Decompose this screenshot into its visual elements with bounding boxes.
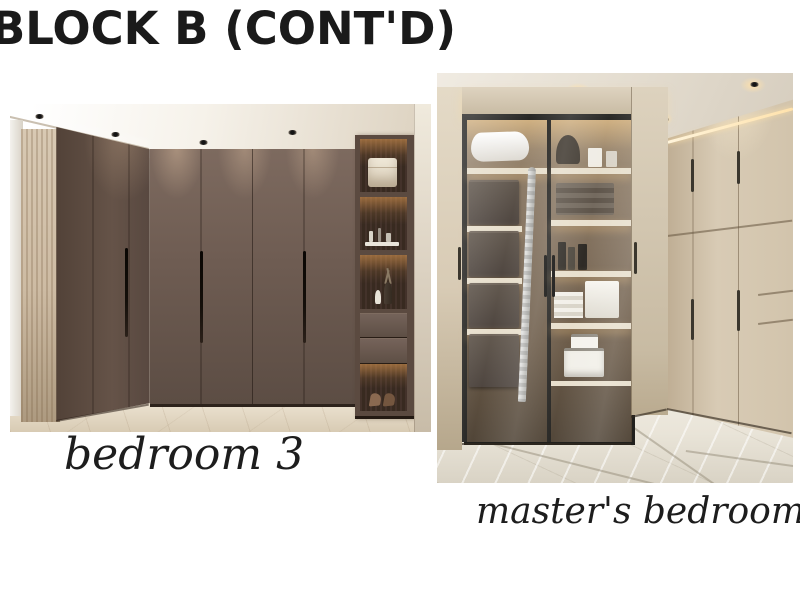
tower-drawer <box>360 313 407 339</box>
bottle <box>558 242 566 269</box>
glass-door-right <box>548 117 635 444</box>
fabric-drawer <box>469 283 519 328</box>
cabinet-shelf <box>551 220 632 226</box>
bedroom-3-caption: bedroom 3 <box>64 429 304 480</box>
moodboard-page: { "page": { "title": "BLOCK B (CONT'D)" … <box>0 0 800 600</box>
door-handle <box>125 248 128 337</box>
white-vase <box>375 290 381 304</box>
glass-door-left <box>464 117 551 444</box>
spotlight-icon <box>111 132 120 137</box>
white-container <box>606 151 617 167</box>
fabric-drawer <box>469 334 519 387</box>
shelf-compartment <box>360 139 407 192</box>
white-container <box>588 148 603 167</box>
perfume-bottle <box>369 231 373 242</box>
glass-door-handle <box>552 255 555 297</box>
bottle <box>578 244 587 270</box>
masters-bedroom-photo <box>437 73 793 483</box>
wardrobe-left-wall <box>56 104 149 432</box>
glass-door-handle <box>544 255 547 297</box>
storage-box <box>368 158 397 187</box>
white-box <box>585 281 619 318</box>
dark-vase <box>384 282 392 304</box>
high-heel-shoe <box>382 393 396 407</box>
bottle <box>568 247 574 270</box>
folded-towels <box>556 183 614 215</box>
drawer-seam <box>758 319 793 325</box>
shelf-compartment <box>360 255 407 308</box>
bedroom-3-photo <box>10 104 431 432</box>
spotlight-icon <box>35 114 44 119</box>
masters-bedroom-caption: master's bedroom <box>476 491 800 532</box>
tower-drawer <box>360 338 407 364</box>
wood-pillar <box>21 129 60 423</box>
door-handle <box>737 151 740 184</box>
cabinet-shelf <box>551 168 632 174</box>
cabinet-shelf <box>551 271 632 277</box>
return-wall <box>414 104 431 432</box>
display-shelf-tower <box>355 135 415 418</box>
ironing-board <box>518 167 536 402</box>
drawer-seam <box>758 290 793 296</box>
step-stool <box>564 348 604 377</box>
cabinet-shelf <box>551 323 632 329</box>
fabric-drawer <box>469 180 519 225</box>
shelf-compartment <box>360 364 407 410</box>
shelf-compartment <box>360 197 407 250</box>
wardrobe-front-panel <box>631 87 668 415</box>
door-handle <box>691 159 694 192</box>
high-heel-shoe <box>369 393 383 407</box>
door-handle <box>737 290 740 331</box>
cabinet-seam <box>667 220 793 237</box>
door-handle <box>200 251 203 343</box>
fabric-drawer <box>469 231 519 276</box>
shelf-tower-interior <box>360 139 407 411</box>
wardrobe-left-stile <box>437 87 462 450</box>
pot <box>556 135 580 164</box>
perfume-bottle <box>378 228 381 242</box>
door-handle <box>634 242 637 275</box>
pillow <box>470 131 529 162</box>
wardrobe-front-wall <box>150 149 356 407</box>
baseboard <box>462 443 631 445</box>
display-tray <box>365 242 399 246</box>
perfume-bottle <box>386 233 391 241</box>
door-handle <box>303 251 306 343</box>
glass-cabinet-section <box>462 114 631 442</box>
door-handle <box>691 299 694 340</box>
cabinet-shelf <box>551 381 632 387</box>
folded-linens <box>554 292 583 318</box>
page-title: BLOCK B (CONT'D) <box>0 3 456 55</box>
